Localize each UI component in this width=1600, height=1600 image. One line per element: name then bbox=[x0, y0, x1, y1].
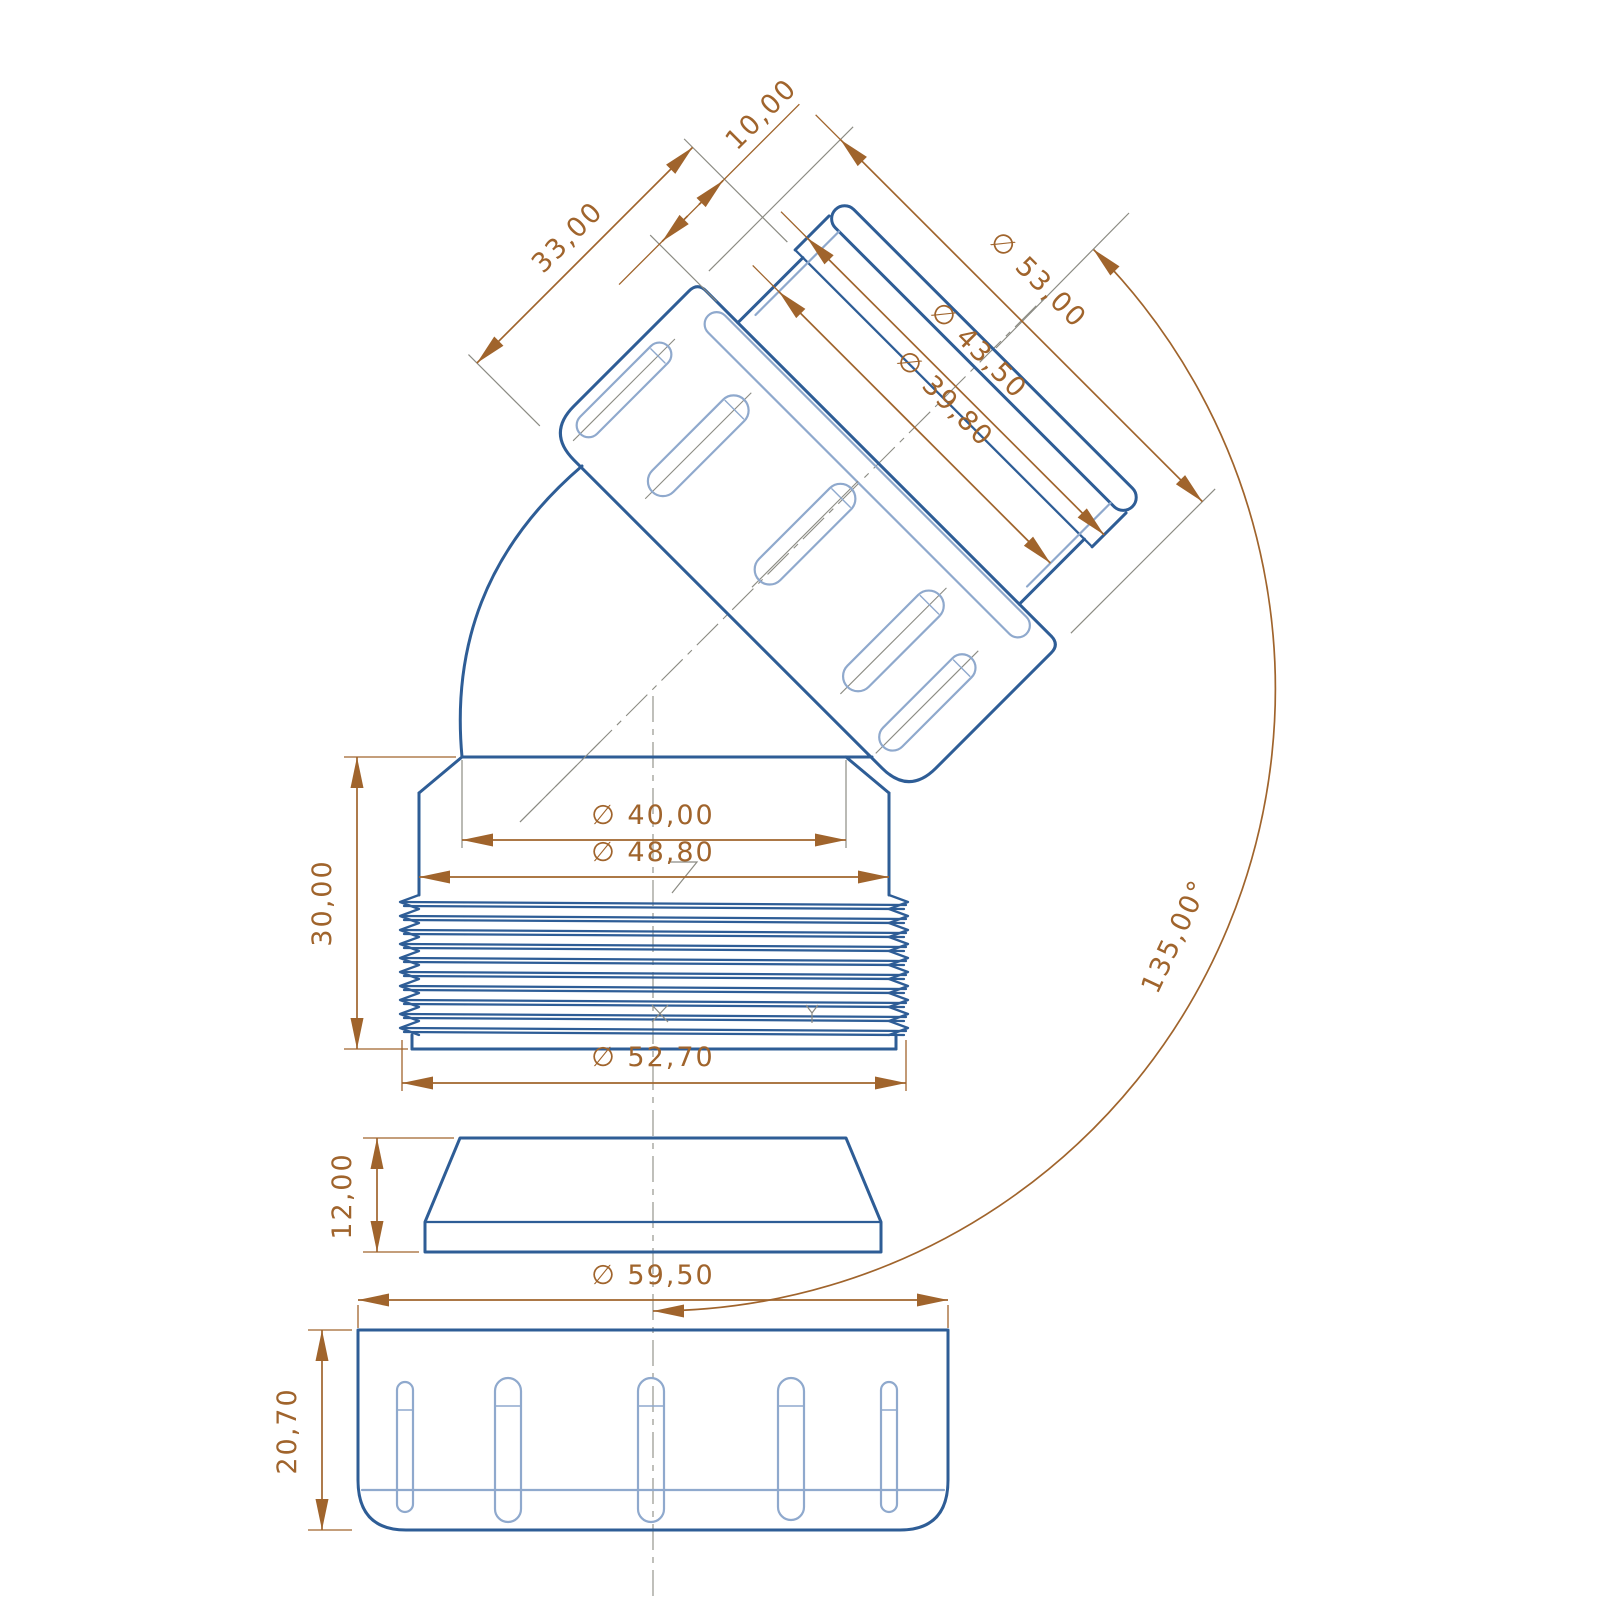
dimension-dia40: ∅ 40,00 bbox=[462, 760, 846, 848]
grip-slot bbox=[778, 1378, 804, 1520]
dim-label-dia527: ∅ 52,70 bbox=[591, 1042, 714, 1073]
technical-drawing-canvas: 135,00° bbox=[0, 0, 1600, 1600]
dim-label-207: 20,70 bbox=[272, 1387, 303, 1474]
dim-label-33: 33,00 bbox=[526, 196, 610, 280]
elbow-outer-arc bbox=[460, 466, 582, 757]
dim-label-12: 12,00 bbox=[327, 1152, 358, 1239]
grip-slot bbox=[397, 1382, 413, 1512]
grip-slot bbox=[881, 1382, 897, 1512]
tilted-nut-view: 33,00 10,00 ∅ 53,00 ∅ 43,50 bbox=[241, 2, 1242, 1003]
cap-grip-slots bbox=[397, 1378, 897, 1522]
thread-crests bbox=[402, 902, 906, 1035]
dimension-207: 20,70 bbox=[272, 1330, 352, 1530]
dim-label-dia40: ∅ 40,00 bbox=[591, 800, 714, 831]
dimension-dia488: ∅ 48,80 bbox=[419, 837, 889, 877]
drawing-svg: 135,00° bbox=[0, 0, 1600, 1600]
threaded-body bbox=[400, 742, 908, 1049]
grip-slot bbox=[638, 1378, 664, 1522]
dim-label-10: 10,00 bbox=[720, 73, 804, 157]
dimension-10: 10,00 bbox=[594, 73, 863, 342]
dim-label-dia595: ∅ 59,50 bbox=[591, 1260, 714, 1291]
dim-label-dia53: ∅ 53,00 bbox=[983, 225, 1092, 334]
dim-label-dia488: ∅ 48,80 bbox=[591, 837, 714, 868]
dim-label-30: 30,00 bbox=[307, 859, 338, 946]
grip-slot bbox=[495, 1378, 521, 1522]
